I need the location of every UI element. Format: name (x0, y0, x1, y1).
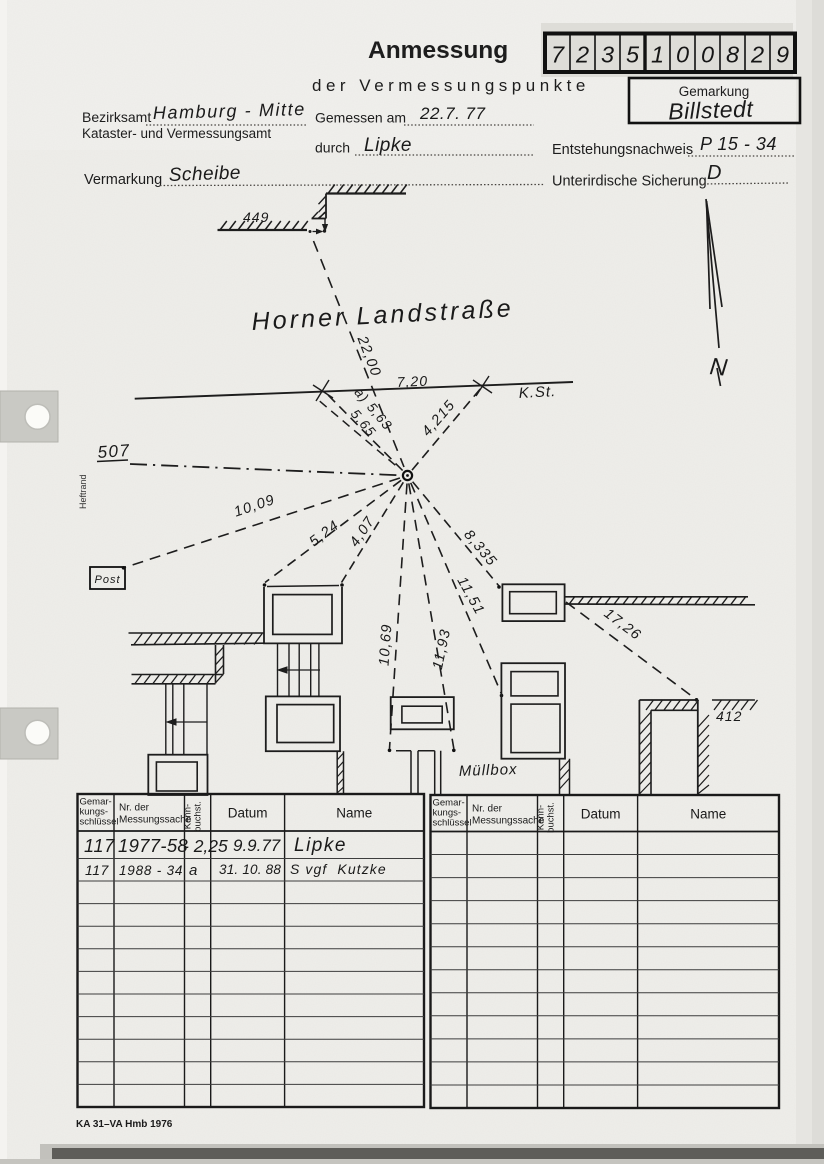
svg-text:7,20: 7,20 (396, 373, 428, 390)
svg-text:Datum: Datum (581, 807, 621, 822)
svg-text:Name: Name (690, 807, 726, 822)
svg-text:0: 0 (676, 42, 689, 68)
svg-text:5: 5 (626, 42, 640, 68)
svg-text:P 15 - 34: P 15 - 34 (700, 134, 777, 154)
svg-text:D: D (707, 162, 721, 184)
svg-text:Post: Post (94, 574, 120, 586)
svg-text:2: 2 (750, 42, 764, 68)
svg-text:Bezirksamt: Bezirksamt (82, 109, 151, 125)
svg-text:Scheibe: Scheibe (168, 162, 241, 186)
svg-text:K.St.: K.St. (518, 383, 556, 402)
svg-text:Messungssache: Messungssache (119, 815, 192, 826)
svg-text:Lipke: Lipke (294, 835, 347, 856)
svg-text:8: 8 (726, 42, 739, 68)
svg-text:- 2,25: - 2,25 (183, 836, 228, 856)
svg-text:durch: durch (315, 140, 350, 156)
svg-text:22.7. 77: 22.7. 77 (419, 104, 485, 123)
svg-text:412: 412 (716, 708, 742, 724)
svg-text:Messungssache: Messungssache (472, 816, 545, 827)
svg-text:Datum: Datum (228, 806, 268, 821)
svg-text:a: a (189, 862, 197, 879)
svg-text:1988 - 34: 1988 - 34 (119, 863, 183, 878)
svg-text:Kataster- und Vermessungsamt: Kataster- und Vermessungsamt (82, 126, 271, 141)
svg-text:0: 0 (701, 42, 714, 68)
svg-text:Billstedt: Billstedt (668, 95, 755, 124)
svg-text:1: 1 (651, 42, 664, 68)
svg-text:449: 449 (243, 209, 269, 225)
svg-text:7: 7 (551, 42, 565, 68)
svg-text:Unterirdische Sicherung: Unterirdische Sicherung (552, 174, 707, 190)
svg-text:3: 3 (601, 42, 614, 68)
svg-text:Gemessen am: Gemessen am (315, 110, 406, 126)
svg-text:Müllbox: Müllbox (459, 761, 518, 780)
svg-text:Anmessung: Anmessung (368, 37, 508, 64)
svg-text:31. 10. 88: 31. 10. 88 (219, 862, 281, 877)
svg-text:KA 31–VA Hmb 1976: KA 31–VA Hmb 1976 (76, 1119, 173, 1130)
svg-text:buchst.: buchst. (546, 802, 557, 833)
svg-text:N: N (708, 353, 729, 382)
svg-text:10,69: 10,69 (377, 623, 396, 666)
svg-text:Nr. der: Nr. der (472, 804, 503, 815)
svg-text:2: 2 (575, 42, 589, 68)
svg-text:1977-58: 1977-58 (118, 835, 188, 856)
svg-text:117: 117 (85, 862, 110, 878)
svg-text:Heftrand: Heftrand (78, 474, 88, 509)
svg-text:schlüssel: schlüssel (80, 817, 119, 828)
svg-text:Nr. der: Nr. der (119, 803, 150, 814)
svg-text:Vermarkung: Vermarkung (84, 172, 162, 188)
svg-text:117: 117 (84, 836, 115, 856)
svg-text:9: 9 (776, 42, 789, 68)
svg-text:Entstehungsnachweis: Entstehungsnachweis (552, 142, 693, 158)
svg-text:Hamburg - Mitte: Hamburg - Mitte (153, 99, 307, 123)
svg-text:Name: Name (336, 806, 372, 821)
svg-text:Lipke: Lipke (364, 135, 412, 156)
svg-text:507: 507 (97, 441, 131, 462)
svg-text:9.9.77: 9.9.77 (233, 836, 281, 855)
svg-text:S vgf Kutzke: S vgf Kutzke (290, 861, 387, 877)
svg-text:der Vermessungspunkte: der Vermessungspunkte (312, 76, 590, 95)
svg-text:buchst.: buchst. (193, 801, 204, 832)
svg-text:schlüssel: schlüssel (433, 818, 472, 829)
